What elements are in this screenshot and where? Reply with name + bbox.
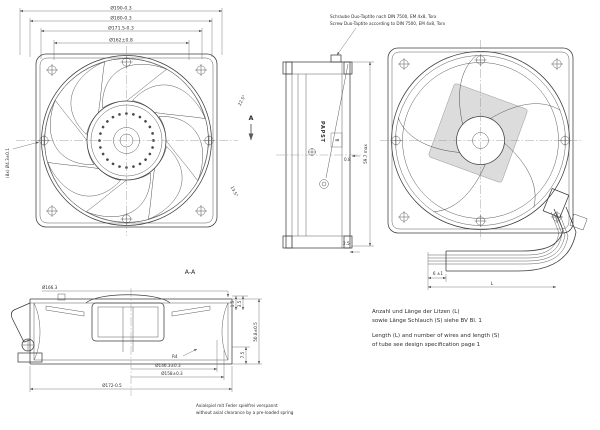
screw-note-en: Screw Duo-Taptite according to DIN 7500,… [330, 21, 446, 26]
dim-d162-label: Ø162±0.8 [109, 37, 133, 44]
dim-wire-length-label: L [491, 281, 494, 287]
axial-note-de: Axialspiel mit Feder spielfrei verspannt [196, 403, 278, 408]
wire-note-en-2: of tube see design specification page 1 [372, 342, 480, 348]
dim-height-label: 50.8±0.5 [253, 322, 258, 342]
dim-d172-label: Ø172-0.5 [102, 383, 122, 388]
dim-mounting-holes-label: (8x) Ø4.3±0.1 [5, 148, 10, 178]
wire-note-de-2: sowie Länge Schlauch (S) siehe BV Bl. 1 [372, 318, 482, 324]
axial-play-note-block: Axialspiel mit Feder spielfrei verspannt… [196, 403, 294, 415]
dim-d190-label: Ø190-0.3 [110, 5, 131, 12]
dim-d158-label: Ø158±0.3 [161, 371, 183, 376]
dim-d180-label: Ø180-0.3 [110, 15, 131, 22]
angle-bottom-label: 13.5° [229, 185, 239, 197]
rear-view [380, 40, 582, 240]
dim-boxed-label: 8 [335, 138, 341, 141]
dim-7_5-label: 7.5 [240, 351, 245, 358]
section-view-title: A-A [185, 269, 196, 276]
dim-offset-label: 2.5 [343, 241, 350, 246]
dim-t1-label: 1.5 [230, 300, 235, 307]
dim-d166_3-label: Ø166.3 [42, 285, 58, 290]
dim-d146_3-label: Ø146.3±0.3 [155, 363, 181, 368]
section-view [11, 288, 232, 396]
protective-tube [446, 207, 576, 271]
wire-note-en-1: Length (L) and number of wires and lengt… [372, 333, 500, 339]
drawing-sheet: Ø190-0.3 Ø180-0.3 Ø171.5-0.3 Ø162±0.8 (8… [0, 0, 600, 430]
section-arrow-label: A [249, 115, 254, 122]
side-view: PAPST [276, 55, 362, 248]
angle-top-label: 22.5° [237, 94, 247, 106]
wire-note-block: Anzahl und Länge der Litzen (L) sowie Lä… [372, 309, 500, 348]
wire-note-de-1: Anzahl und Länge der Litzen (L) [372, 309, 460, 315]
brand-logo-text: PAPST [319, 121, 325, 143]
dim-depth-label: 59.7 max [363, 144, 368, 164]
dim-radius-label: R4 [172, 354, 178, 359]
section-view-dimensions: Ø166.3 1.5 3.5 50.8±0.5 7.5 R4 Ø146.3±0.… [30, 285, 262, 392]
front-view [16, 43, 238, 237]
lead-wires: 6 ±1 L [428, 189, 587, 290]
axial-note-en: without axial clearance by a pre-loaded … [196, 410, 294, 415]
dim-wire-strip-label: 6 ±1 [433, 271, 444, 276]
screw-note-de: Schraube Duo-Taptite nach DIN 7500, EM 4… [330, 14, 437, 19]
technical-drawing: Ø190-0.3 Ø180-0.3 Ø171.5-0.3 Ø162±0.8 (8… [0, 0, 600, 430]
dim-d171_5-label: Ø171.5-0.3 [108, 25, 134, 32]
dim-gap-label: 0.8 [344, 157, 351, 162]
dim-t2-label: 3.5 [237, 300, 242, 307]
